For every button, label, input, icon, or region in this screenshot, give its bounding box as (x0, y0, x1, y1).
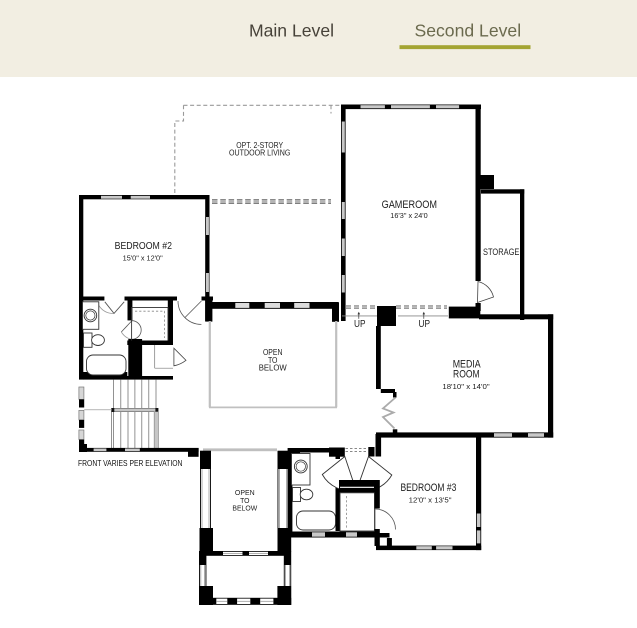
svg-text:OUTDOOR LIVING: OUTDOOR LIVING (229, 149, 290, 158)
svg-text:18'10" x 14'0": 18'10" x 14'0" (442, 382, 490, 391)
svg-text:16'3" x 24'0: 16'3" x 24'0 (390, 211, 427, 220)
svg-text:UP: UP (419, 319, 431, 330)
svg-text:Second Level: Second Level (414, 21, 521, 41)
svg-text:BELOW: BELOW (232, 503, 258, 512)
svg-text:UP: UP (354, 319, 366, 330)
svg-text:12'0" x 13'5": 12'0" x 13'5" (409, 496, 452, 505)
svg-text:FRONT VARIES PER ELEVATION: FRONT VARIES PER ELEVATION (78, 459, 183, 468)
svg-text:Main Level: Main Level (249, 21, 334, 41)
svg-text:STORAGE: STORAGE (483, 247, 519, 257)
svg-text:BELOW: BELOW (259, 364, 287, 373)
svg-text:15'0" x 12'0": 15'0" x 12'0" (123, 253, 163, 262)
svg-text:BEDROOM #3: BEDROOM #3 (400, 482, 456, 494)
svg-text:BEDROOM #2: BEDROOM #2 (115, 241, 172, 252)
svg-text:ROOM: ROOM (453, 368, 480, 380)
svg-text:GAMEROOM: GAMEROOM (382, 199, 437, 211)
